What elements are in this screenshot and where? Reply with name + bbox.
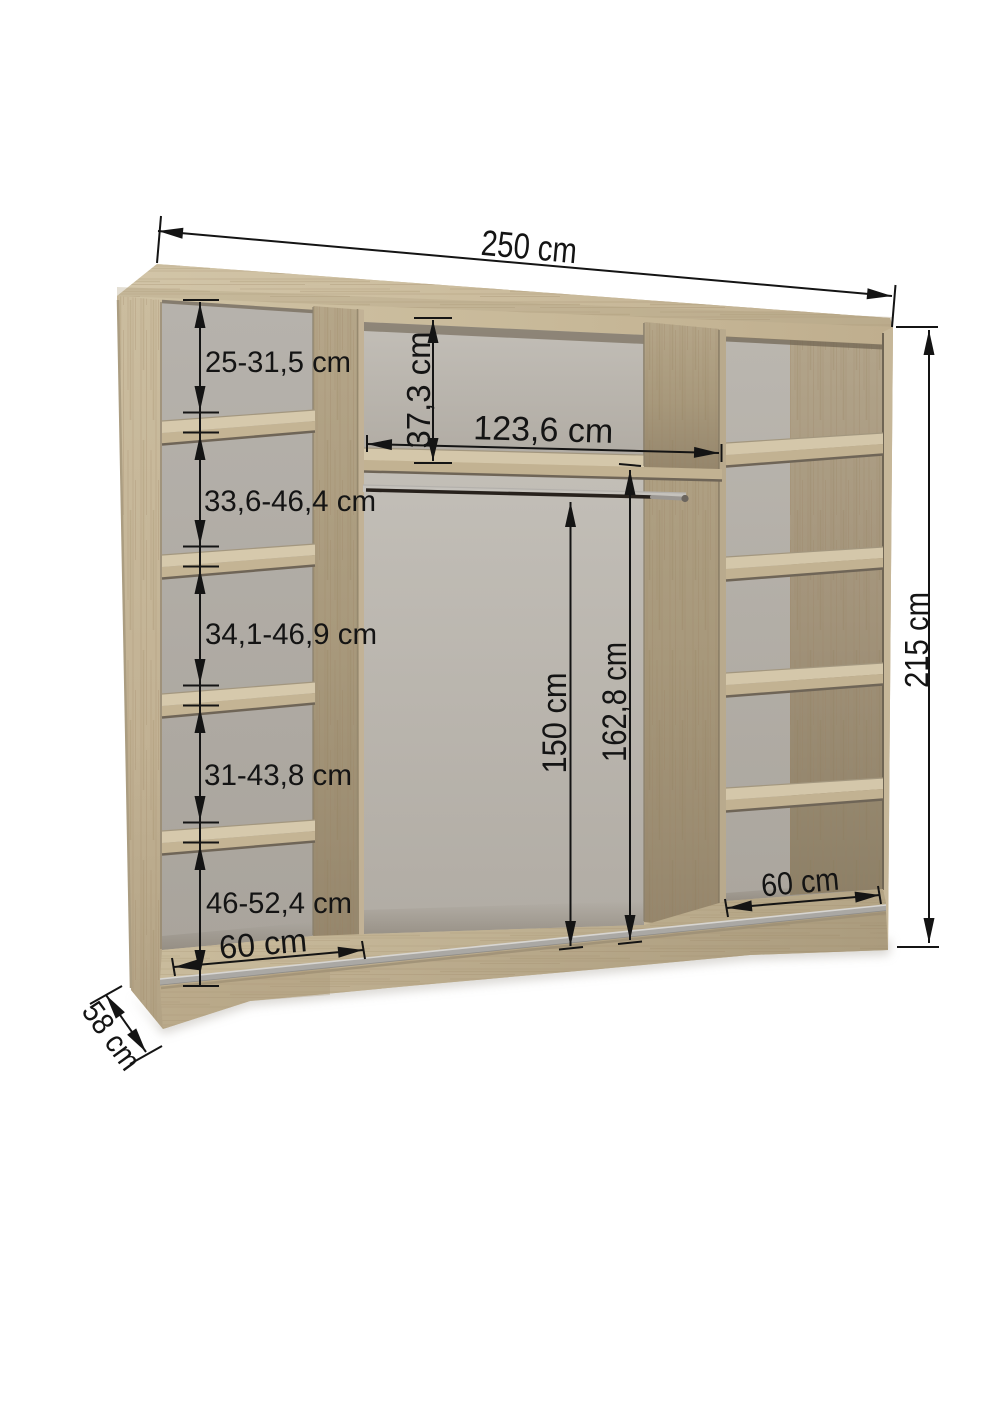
svg-text:60 cm: 60 cm xyxy=(760,861,841,904)
svg-text:25-31,5 cm: 25-31,5 cm xyxy=(205,346,351,379)
svg-text:150 cm: 150 cm xyxy=(536,673,574,774)
svg-text:162,8 cm: 162,8 cm xyxy=(596,642,634,762)
svg-text:215 cm: 215 cm xyxy=(898,592,935,688)
svg-text:46-52,4 cm: 46-52,4 cm xyxy=(206,887,352,920)
svg-text:34,1-46,9 cm: 34,1-46,9 cm xyxy=(205,618,377,651)
svg-text:123,6 cm: 123,6 cm xyxy=(473,409,614,451)
svg-text:60 cm: 60 cm xyxy=(218,921,309,966)
svg-text:31-43,8 cm: 31-43,8 cm xyxy=(204,759,352,792)
svg-text:33,6-46,4 cm: 33,6-46,4 cm xyxy=(204,485,376,518)
svg-text:37,3 cm: 37,3 cm xyxy=(400,332,437,449)
svg-text:250 cm: 250 cm xyxy=(479,222,578,271)
